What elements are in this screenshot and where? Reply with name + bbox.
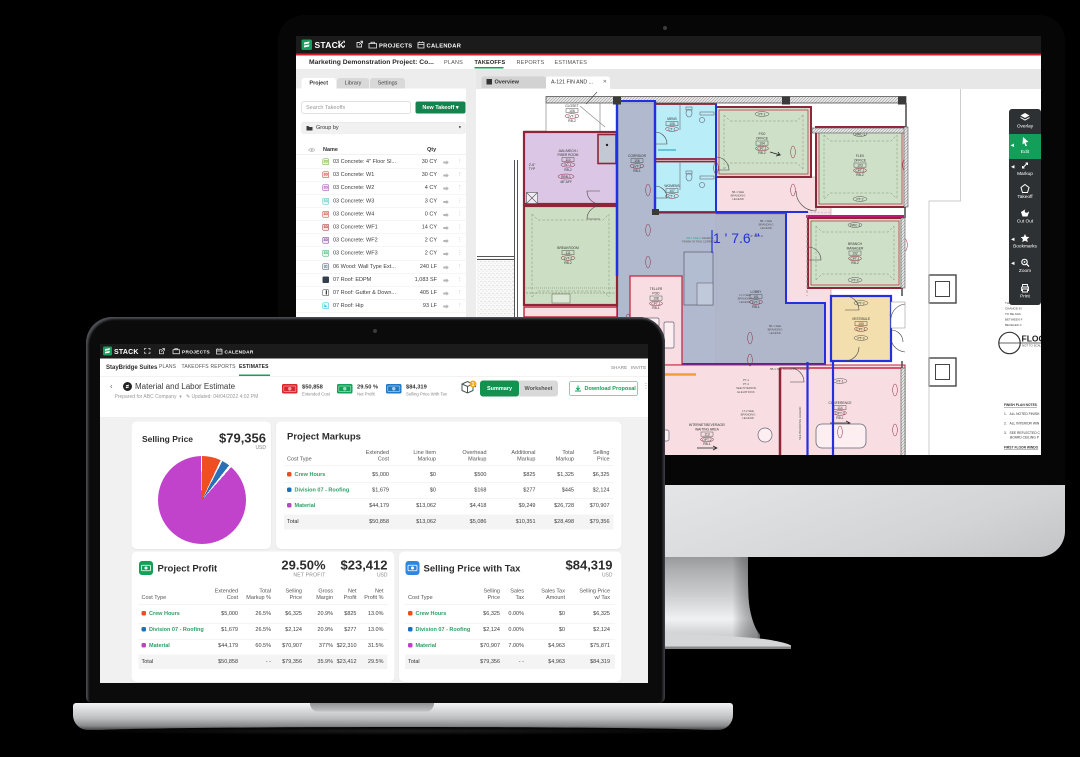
svg-text:PT-3: PT-3 [858, 301, 865, 305]
svg-text:100: 100 [858, 322, 864, 326]
svg-text:CT-1: CT-1 [668, 127, 675, 131]
svg-text:BETWEEN F: BETWEEN F [1005, 318, 1023, 322]
svg-text:111: 111 [565, 251, 570, 255]
svg-text:WAITING AREA: WAITING AREA [695, 428, 719, 432]
svg-text:LEGEND: LEGEND [760, 226, 772, 230]
svg-text:RB-1: RB-1 [652, 306, 660, 310]
svg-text:RB-2: RB-2 [568, 119, 576, 123]
svg-text:114: 114 [837, 406, 842, 410]
svg-text:110: 110 [565, 158, 570, 162]
svg-text:PT-3: PT-3 [852, 278, 859, 282]
svg-text:102: 102 [852, 251, 858, 255]
svg-text:RB-1: RB-1 [703, 442, 711, 446]
svg-text:113: 113 [704, 432, 709, 436]
svg-text:PROJECTS: PROJECTS [182, 349, 210, 355]
svg-text:RB-1: RB-1 [836, 416, 844, 420]
svg-text:PT-3: PT-3 [858, 336, 865, 340]
svg-text:RB-1: RB-1 [633, 169, 641, 173]
svg-text:RB-2: RB-2 [564, 261, 572, 265]
svg-text:LVT-1: LVT-1 [752, 300, 761, 304]
svg-text:PT-2: PT-2 [857, 197, 864, 201]
svg-text:3'-0" OPT-3: 3'-0" OPT-3 [747, 234, 763, 238]
svg-text:PT-1: PT-1 [759, 112, 766, 116]
svg-text:BOARD CEILING P: BOARD CEILING P [1010, 436, 1040, 440]
svg-text:SEE BRANDING LEGEND: SEE BRANDING LEGEND [798, 407, 802, 440]
svg-text:CT-1: CT-1 [668, 194, 675, 198]
svg-text:CLOSET: CLOSET [565, 104, 579, 108]
svg-text:FLEX: FLEX [856, 154, 865, 158]
svg-text:BRANCH: BRANCH [848, 242, 863, 246]
svg-text:BEVELED C: BEVELED C [1005, 323, 1023, 327]
svg-text:106: 106 [569, 109, 575, 113]
svg-text:PT-1: PT-1 [837, 379, 844, 383]
svg-text:LEGEND: LEGEND [742, 416, 754, 420]
svg-text:LVT-1: LVT-1 [633, 164, 642, 168]
svg-text:POD: POD [652, 292, 660, 296]
svg-text:NOT TO SCALE: NOT TO SCALE [1022, 344, 1041, 348]
svg-text:TO BE ADA: TO BE ADA [1005, 312, 1021, 316]
svg-text:CPT-1: CPT-1 [856, 327, 866, 331]
svg-text:FINISH IN THIS CORRIDOR: FINISH IN THIS CORRIDOR [682, 240, 718, 244]
svg-text:107: 107 [669, 189, 675, 193]
svg-text:VESTIBULE: VESTIBULE [852, 317, 871, 321]
svg-text:BREAKROOM: BREAKROOM [557, 246, 579, 250]
svg-text:TELLER: TELLER [650, 287, 663, 291]
svg-text:LEGEND: LEGEND [769, 331, 781, 335]
svg-text:TYP: TYP [529, 167, 536, 171]
svg-text:CALENDAR: CALENDAR [225, 349, 254, 355]
svg-text:104: 104 [759, 141, 765, 145]
svg-text:FLOO: FLOO [1022, 334, 1042, 344]
svg-text:FINISH PLAN NOTES: FINISH PLAN NOTES [1004, 403, 1038, 407]
svg-text:FIBER ROOM: FIBER ROOM [558, 153, 579, 157]
svg-text:CHANGE IN: CHANGE IN [1005, 307, 1022, 311]
svg-text:VWC-1: VWC-1 [850, 223, 861, 227]
svg-text:FSO: FSO [759, 132, 766, 136]
svg-text:5B-1 SEE BRANDING LEGEND: 5B-1 SEE BRANDING LEGEND [770, 367, 810, 371]
svg-text:1. ALL NOTED FINISH: 1. ALL NOTED FINISH [1004, 412, 1040, 416]
svg-text:ELEVATIONS: ELEVATIONS [737, 390, 754, 394]
svg-text:RB-1: RB-1 [752, 305, 760, 309]
svg-text:WOMENS: WOMENS [664, 184, 680, 188]
svg-text:106: 106 [634, 159, 640, 163]
svg-text:CALENDAR: CALENDAR [427, 44, 462, 50]
svg-text:MANAGER: MANAGER [847, 247, 864, 251]
svg-text:108: 108 [653, 296, 659, 300]
svg-text:RB-2: RB-2 [851, 261, 859, 265]
svg-text:LOBBY: LOBBY [751, 290, 763, 294]
svg-text:OPT-3: OPT-3 [835, 411, 845, 415]
svg-text:48" AFF: 48" AFF [560, 180, 572, 184]
svg-text:101: 101 [753, 295, 759, 299]
svg-text:OFFICE: OFFICE [854, 159, 867, 163]
svg-text:RB-2: RB-2 [856, 173, 864, 177]
svg-text:PROJECTS: PROJECTS [379, 44, 412, 50]
svg-text:OFFICE: OFFICE [756, 137, 769, 141]
svg-text:1 ' 7.6 ": 1 ' 7.6 " [713, 230, 760, 246]
svg-text:STACK: STACK [114, 349, 139, 356]
svg-text:INTERNET/BEVERAGE/: INTERNET/BEVERAGE/ [689, 423, 726, 427]
svg-text:103: 103 [857, 163, 863, 167]
svg-text:FIRST FLOOR WINDO: FIRST FLOOR WINDO [1004, 446, 1039, 450]
svg-text:LVT-1: LVT-1 [568, 114, 577, 118]
svg-text:1: 1 [472, 382, 475, 388]
svg-text:RB-2: RB-2 [758, 151, 766, 155]
svg-text:MENS: MENS [667, 117, 677, 121]
svg-text:RBB-1: RBB-1 [561, 175, 571, 179]
svg-text:LVT-2: LVT-2 [564, 256, 573, 260]
svg-text:RB-2: RB-2 [564, 168, 572, 172]
svg-text:LEGEND: LEGEND [739, 300, 751, 304]
svg-text:3. SEE REFLECTED C: 3. SEE REFLECTED C [1004, 431, 1041, 435]
svg-text:2. ALL INTERIOR WIN: 2. ALL INTERIOR WIN [1004, 422, 1040, 426]
svg-text:CORRIDOR: CORRIDOR [628, 154, 647, 158]
svg-text:105: 105 [669, 122, 675, 126]
svg-text:LEGEND: LEGEND [732, 197, 744, 201]
svg-text:SC-1: SC-1 [564, 163, 572, 167]
